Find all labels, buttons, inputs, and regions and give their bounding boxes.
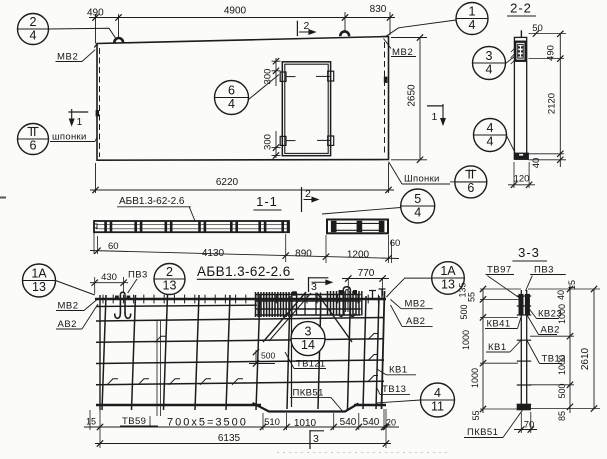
svg-text:70: 70 bbox=[524, 420, 535, 431]
svg-text:2: 2 bbox=[304, 20, 310, 32]
svg-text:20: 20 bbox=[386, 418, 396, 428]
svg-text:770: 770 bbox=[358, 268, 375, 279]
svg-text:ПВ3: ПВ3 bbox=[534, 265, 554, 276]
svg-text:14: 14 bbox=[301, 338, 315, 352]
svg-text:500: 500 bbox=[557, 383, 567, 398]
svg-text:1А: 1А bbox=[440, 264, 456, 278]
svg-text:500: 500 bbox=[261, 351, 275, 361]
svg-text:2610: 2610 bbox=[580, 347, 591, 370]
svg-text:КВ1: КВ1 bbox=[389, 365, 408, 376]
svg-text:890: 890 bbox=[295, 249, 312, 260]
svg-text:1: 1 bbox=[469, 4, 476, 18]
svg-text:ТВ97: ТВ97 bbox=[487, 265, 512, 276]
svg-text:4900: 4900 bbox=[224, 6, 247, 17]
svg-text:13: 13 bbox=[32, 280, 46, 294]
svg-text:2-2: 2-2 bbox=[510, 1, 532, 16]
svg-text:1000: 1000 bbox=[470, 368, 480, 388]
svg-text:4: 4 bbox=[434, 386, 441, 400]
svg-text:300: 300 bbox=[263, 69, 274, 85]
svg-text:490: 490 bbox=[87, 8, 104, 19]
svg-text:АБВ1.3-62-2.6: АБВ1.3-62-2.6 bbox=[197, 264, 291, 279]
svg-text:1000: 1000 bbox=[461, 330, 471, 350]
svg-text:40: 40 bbox=[531, 158, 542, 169]
svg-text:1010: 1010 bbox=[294, 418, 317, 429]
svg-text:ПВ3: ПВ3 bbox=[128, 270, 148, 281]
svg-text:ПКВ51: ПКВ51 bbox=[467, 427, 498, 438]
svg-text:2: 2 bbox=[166, 265, 173, 279]
svg-text:500: 500 bbox=[459, 304, 469, 319]
svg-text:ТВ59: ТВ59 bbox=[122, 416, 146, 427]
svg-text:430: 430 bbox=[101, 272, 117, 283]
svg-text:2: 2 bbox=[305, 188, 311, 200]
svg-text:300: 300 bbox=[263, 134, 274, 150]
svg-text:Шпонки: Шпонки bbox=[404, 174, 440, 185]
svg-text:3: 3 bbox=[313, 433, 319, 445]
svg-text:II: II bbox=[467, 168, 474, 182]
svg-text:4: 4 bbox=[486, 62, 493, 76]
svg-text:АВ2: АВ2 bbox=[58, 319, 77, 330]
svg-text:II: II bbox=[30, 125, 37, 139]
svg-text:4: 4 bbox=[228, 97, 235, 111]
svg-text:шпонки: шпонки bbox=[52, 132, 87, 143]
svg-text:55: 55 bbox=[467, 292, 477, 302]
svg-text:6: 6 bbox=[30, 138, 37, 152]
svg-text:1: 1 bbox=[432, 111, 438, 123]
svg-text:АБВ1.3-62-2.6: АБВ1.3-62-2.6 bbox=[119, 196, 185, 207]
svg-text:2120: 2120 bbox=[547, 93, 558, 114]
svg-text:КВ41: КВ41 bbox=[487, 319, 511, 330]
svg-text:120: 120 bbox=[514, 174, 530, 185]
svg-text:1: 1 bbox=[77, 116, 83, 128]
svg-text:МВ2: МВ2 bbox=[405, 299, 426, 310]
svg-text:60: 60 bbox=[108, 241, 119, 252]
svg-text:830: 830 bbox=[370, 4, 387, 15]
svg-text:15: 15 bbox=[86, 417, 96, 427]
svg-text:60: 60 bbox=[390, 238, 401, 249]
svg-text:2: 2 bbox=[30, 15, 37, 29]
svg-text:13: 13 bbox=[163, 278, 177, 292]
svg-text:ТВ13: ТВ13 bbox=[382, 384, 406, 395]
svg-text:700х5=3500: 700х5=3500 bbox=[167, 417, 248, 429]
svg-text:6: 6 bbox=[467, 181, 474, 195]
svg-text:1000: 1000 bbox=[557, 304, 567, 324]
svg-text:6135: 6135 bbox=[218, 433, 241, 444]
svg-text:АВ2: АВ2 bbox=[406, 316, 425, 327]
svg-text:КВ1: КВ1 bbox=[488, 342, 507, 353]
svg-text:МВ2: МВ2 bbox=[58, 301, 79, 312]
svg-text:3: 3 bbox=[311, 281, 317, 293]
svg-text:85: 85 bbox=[557, 411, 567, 421]
svg-text:1200: 1200 bbox=[347, 250, 370, 261]
svg-text:40: 40 bbox=[556, 290, 566, 300]
svg-text:490: 490 bbox=[546, 45, 557, 61]
svg-text:3: 3 bbox=[486, 49, 493, 63]
svg-text:540: 540 bbox=[363, 417, 380, 428]
svg-text:ПКВ51: ПКВ51 bbox=[293, 388, 324, 399]
svg-text:4130: 4130 bbox=[202, 248, 225, 259]
svg-text:3-3: 3-3 bbox=[518, 245, 540, 260]
svg-text:1000: 1000 bbox=[557, 355, 567, 375]
svg-text:15: 15 bbox=[567, 280, 577, 290]
svg-text:13: 13 bbox=[441, 277, 455, 291]
svg-text:1А: 1А bbox=[31, 266, 47, 280]
svg-text:МВ2: МВ2 bbox=[57, 52, 78, 63]
svg-text:6220: 6220 bbox=[216, 177, 239, 188]
svg-text:2650: 2650 bbox=[407, 84, 418, 107]
svg-text:540: 540 bbox=[340, 417, 357, 428]
svg-text:4: 4 bbox=[487, 121, 494, 135]
svg-text:11: 11 bbox=[431, 399, 444, 413]
svg-text:4: 4 bbox=[414, 205, 421, 219]
svg-text:4: 4 bbox=[30, 28, 37, 42]
svg-text:ТВ121: ТВ121 bbox=[296, 359, 326, 370]
svg-text:4: 4 bbox=[487, 134, 494, 148]
svg-text:5: 5 bbox=[414, 192, 421, 206]
svg-text:6: 6 bbox=[228, 83, 235, 97]
svg-text:55: 55 bbox=[471, 410, 481, 420]
svg-text:4: 4 bbox=[469, 18, 476, 32]
svg-text:1-1: 1-1 bbox=[256, 194, 278, 209]
svg-text:АВ2: АВ2 bbox=[541, 325, 560, 336]
svg-text:510: 510 bbox=[264, 417, 280, 428]
svg-text:3: 3 bbox=[305, 324, 312, 338]
